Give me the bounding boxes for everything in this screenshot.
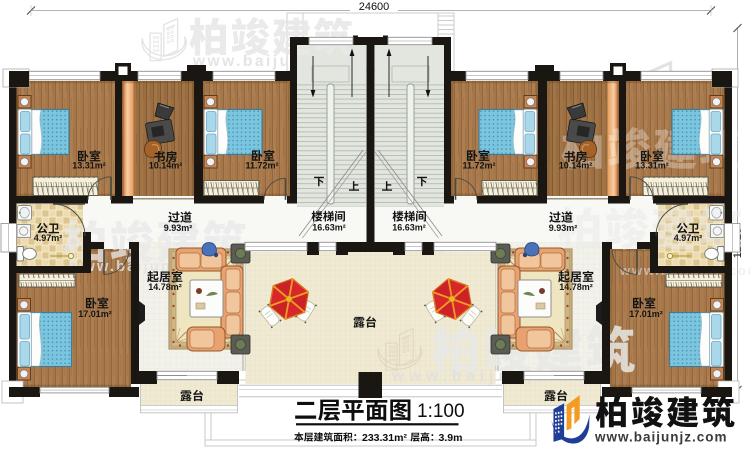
svg-text:17.01m²: 17.01m² <box>78 309 112 319</box>
svg-text:1:100: 1:100 <box>417 401 465 422</box>
svg-text:17.01m²: 17.01m² <box>629 309 663 319</box>
svg-text:13.31m²: 13.31m² <box>72 161 106 171</box>
svg-text:9.93m²: 9.93m² <box>549 223 578 233</box>
svg-text:10.14m²: 10.14m² <box>149 161 183 171</box>
svg-text:11.72m²: 11.72m² <box>462 161 495 171</box>
svg-text:14.78m²: 14.78m² <box>148 282 182 292</box>
svg-text:4.97m²: 4.97m² <box>34 233 63 243</box>
svg-text:www.baijunjz.com: www.baijunjz.com <box>594 430 728 445</box>
svg-text:4.97m²: 4.97m² <box>674 233 703 243</box>
svg-text:10.14m²: 10.14m² <box>559 161 593 171</box>
svg-text:13.31m²: 13.31m² <box>635 161 669 171</box>
svg-text:14.78m²: 14.78m² <box>559 282 593 292</box>
svg-text:www.baijunjz.com: www.baijunjz.com <box>192 53 367 70</box>
svg-text:16.63m²: 16.63m² <box>312 223 346 233</box>
svg-text:16.63m²: 16.63m² <box>392 223 426 233</box>
svg-text:24600: 24600 <box>359 1 390 13</box>
svg-text:9.93m²: 9.93m² <box>164 223 193 233</box>
svg-text:3.9m: 3.9m <box>439 432 463 444</box>
svg-text:11.72m²: 11.72m² <box>245 161 278 171</box>
svg-text:233.31m²: 233.31m² <box>362 432 407 444</box>
